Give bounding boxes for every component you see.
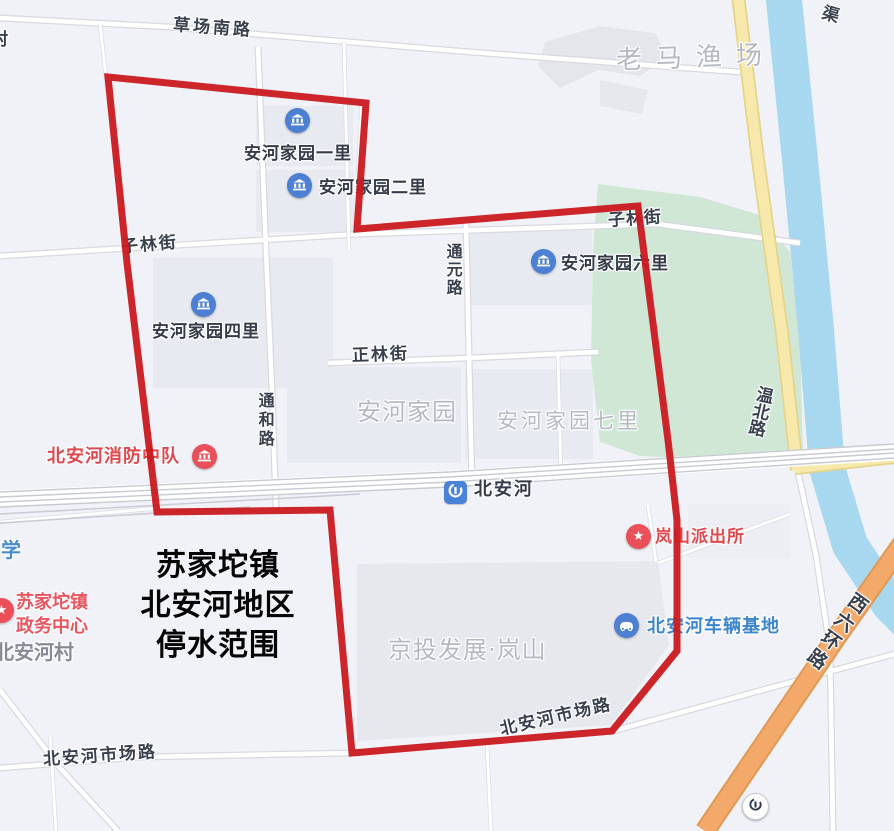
canal-label: 渠 — [820, 4, 841, 27]
outage-annotation-line1: 苏家坨镇 — [112, 546, 324, 586]
road-label-zhenglin: 正林街 — [352, 345, 410, 366]
road-label-zilin-west: 子林街 — [120, 234, 178, 258]
area-label-jingtou-lanshan: 京投发展·岚山 — [388, 637, 547, 663]
subway-entrance-icon[interactable] — [742, 793, 769, 820]
poi-label-anhe-erli[interactable]: 安河家园二里 — [319, 179, 427, 198]
expressway-casing — [705, 540, 894, 831]
poi-label-anhe-sili[interactable]: 安河家园四里 — [152, 323, 260, 342]
outage-annotation: 苏家坨镇 北安河地区 停水范围 — [112, 546, 324, 666]
poi-label-fire-brigade[interactable]: 北安河消防中队 — [47, 447, 180, 467]
road-label-xiliuhuan: 西六环路 — [800, 588, 871, 675]
star-icon: ★ — [0, 604, 7, 617]
building-icon — [537, 252, 550, 271]
star-icon: ★ — [633, 530, 645, 543]
poi-pin-anhe-yili[interactable] — [285, 108, 310, 133]
canal-water — [782, 0, 894, 650]
car-icon — [619, 616, 634, 635]
area-label-beianhe-village: 北安河村 — [0, 641, 74, 663]
road-label-zilin-east: 子林街 — [607, 208, 662, 230]
metro-logo-icon — [748, 797, 763, 816]
poi-pin-fire-brigade[interactable] — [192, 444, 217, 469]
road-label-tongyuan: 通元路 — [444, 243, 462, 297]
poi-pin-anhe-sili[interactable] — [191, 292, 216, 317]
building-icon — [291, 111, 304, 130]
poi-label-gov-center-line2[interactable]: 政务中心 — [16, 617, 88, 637]
map-viewport[interactable]: 老马渔场 安河家园 安河家园七里 京投发展·岚山 北安河村 学 村 草场南路 子… — [0, 0, 894, 831]
area-label-anhe-jiayuan-qili: 安河家园七里 — [497, 410, 641, 433]
metro-logo-icon — [447, 482, 464, 503]
poi-pin-anhe-liuli[interactable] — [531, 249, 556, 274]
outage-annotation-line3: 停水范围 — [112, 626, 324, 666]
road-label-wenbei: 温北路 — [744, 384, 774, 438]
road-label-shichang-east: 北安河市场路 — [498, 695, 613, 739]
outage-annotation-line2: 北安河地区 — [112, 586, 324, 626]
building-icon — [198, 447, 211, 466]
poi-label-police-station[interactable]: 岚山派出所 — [655, 528, 745, 547]
poi-label-metro-beianhe[interactable]: 北安河 — [474, 480, 534, 500]
road-label-shichang-west: 北安河市场路 — [42, 743, 157, 770]
poi-pin-metro-beianhe[interactable] — [444, 481, 467, 504]
partial-label-village: 村 — [0, 31, 8, 50]
building-icon — [197, 295, 210, 314]
expressway — [705, 540, 894, 831]
fishery-pond-shape-2 — [600, 80, 648, 114]
poi-label-anhe-liuli[interactable]: 安河家园六里 — [561, 255, 669, 274]
poi-label-vehicle-base[interactable]: 北安河车辆基地 — [647, 617, 780, 637]
poi-label-anhe-yili[interactable]: 安河家园一里 — [244, 145, 352, 164]
area-label-anhe-jiayuan: 安河家园 — [357, 399, 457, 425]
poi-pin-vehicle-base[interactable] — [614, 613, 639, 638]
poi-pin-anhe-erli[interactable] — [287, 173, 312, 198]
poi-pin-gov-center[interactable]: ★ — [0, 598, 14, 623]
area-label-laoma-fishery: 老马渔场 — [616, 41, 777, 75]
building-icon — [293, 176, 306, 195]
road-label-tonghe: 通和路 — [256, 392, 274, 449]
poi-pin-police-station[interactable]: ★ — [626, 524, 651, 549]
partial-label-school: 学 — [1, 539, 21, 561]
poi-label-gov-center-line1[interactable]: 苏家坨镇 — [16, 593, 88, 613]
road-label-caochang-south: 草场南路 — [172, 16, 253, 40]
